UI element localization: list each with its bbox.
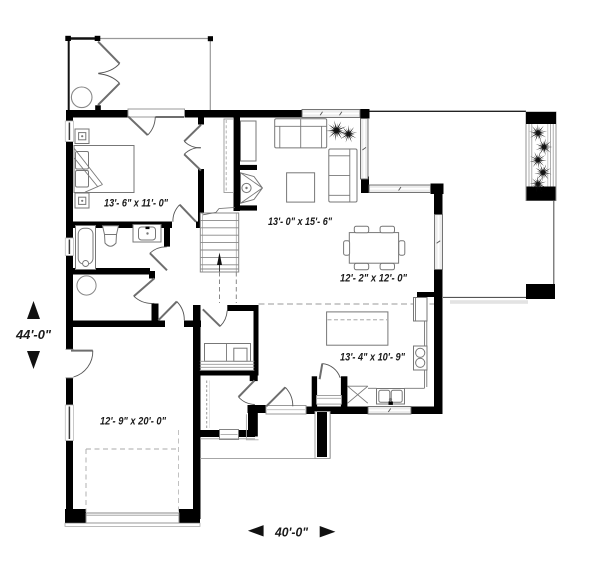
svg-text:44'-0": 44'-0" xyxy=(15,327,52,342)
svg-text:13'- 0" x 15'- 6": 13'- 0" x 15'- 6" xyxy=(268,216,333,228)
svg-text:12'- 9" x 20'- 0": 12'- 9" x 20'- 0" xyxy=(100,416,167,428)
svg-text:40'-0": 40'-0" xyxy=(274,525,309,540)
svg-text:13'- 4" x 10'- 9": 13'- 4" x 10'- 9" xyxy=(340,352,406,364)
svg-text:13'- 6" x 11'- 0": 13'- 6" x 11'- 0" xyxy=(104,198,169,210)
svg-text:12'- 2" x 12'- 0": 12'- 2" x 12'- 0" xyxy=(340,273,408,285)
